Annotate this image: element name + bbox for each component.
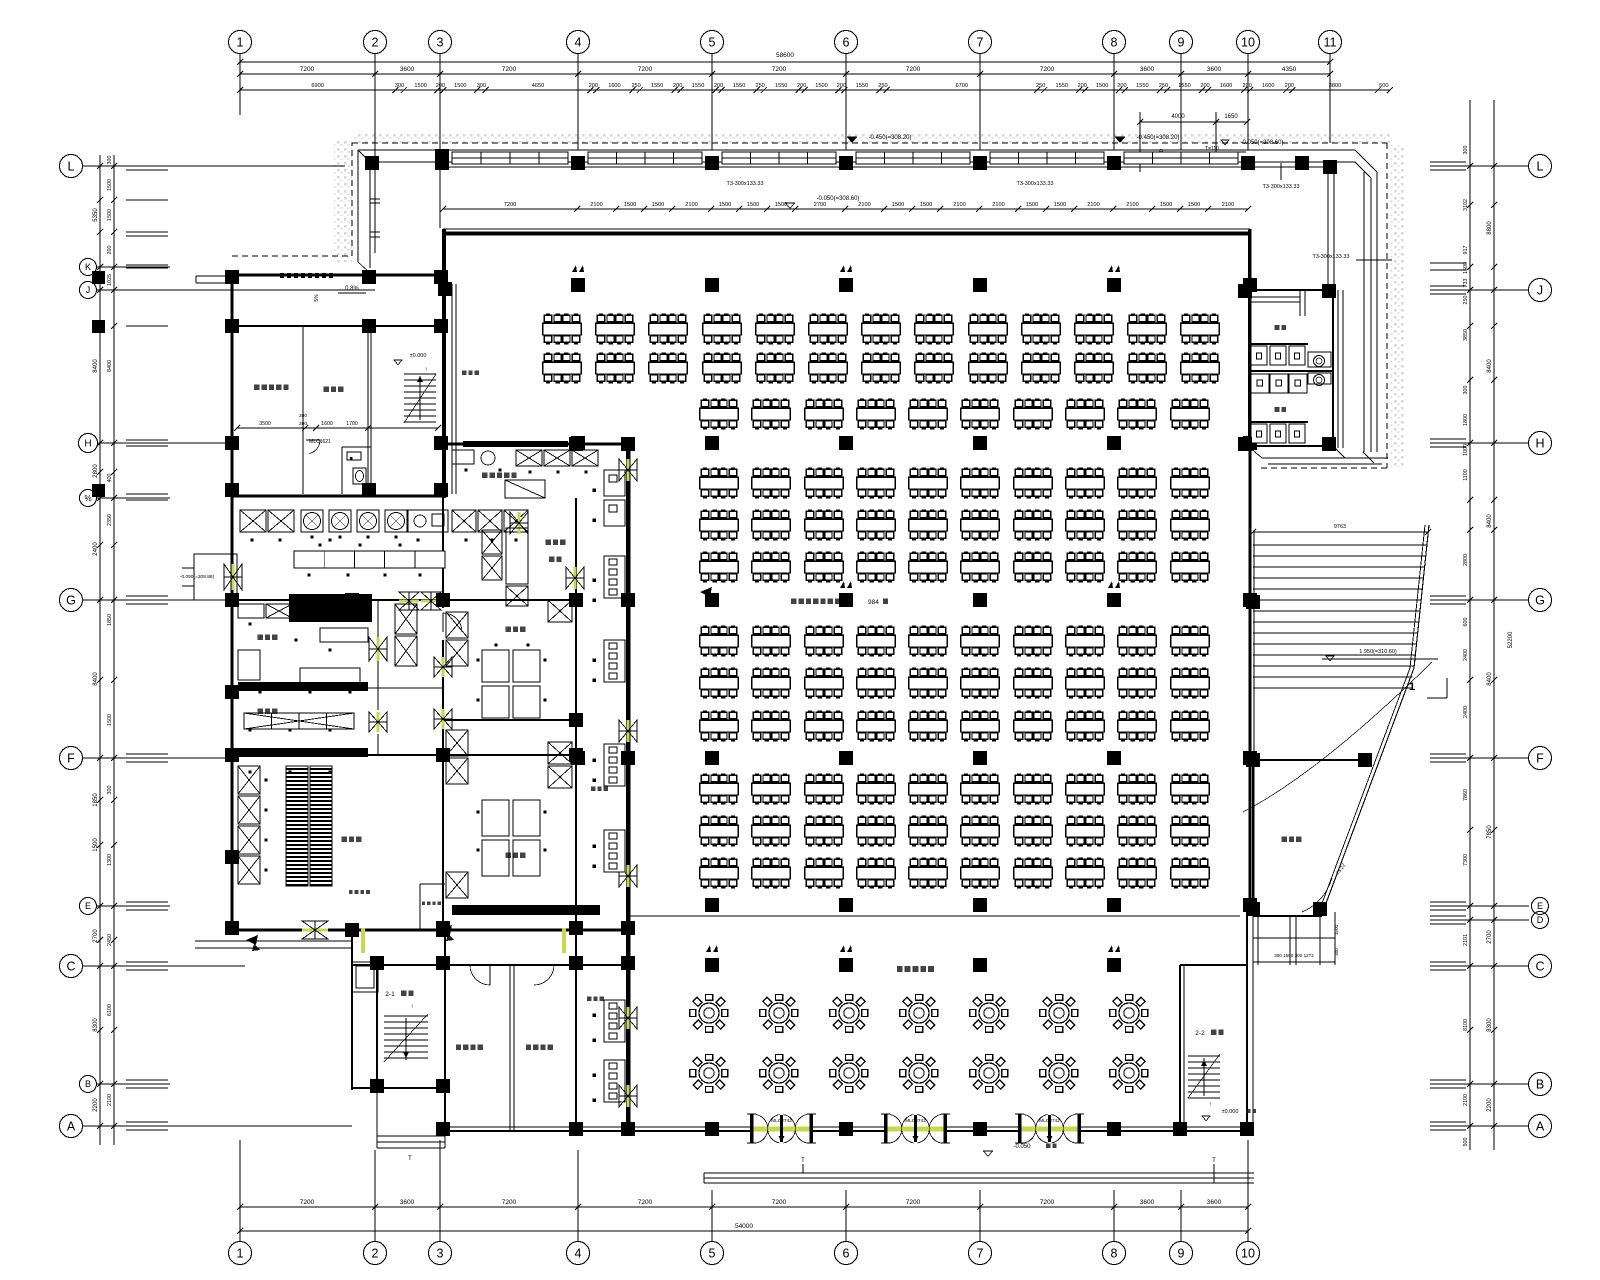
svg-text:4350: 4350 [1282, 66, 1297, 73]
svg-text:4650: 4650 [532, 83, 544, 89]
svg-text:7200: 7200 [300, 1199, 315, 1206]
svg-text:T=110: T=110 [1205, 146, 1219, 152]
svg-text:T: T [801, 1158, 805, 1164]
svg-text:300: 300 [1463, 146, 1469, 155]
svg-text:1500: 1500 [1026, 202, 1038, 208]
svg-text:T3-300x133.33: T3-300x133.33 [1313, 254, 1350, 260]
svg-text:1500: 1500 [1096, 83, 1108, 89]
svg-text:5%: 5% [314, 294, 320, 302]
svg-text:A: A [67, 1120, 76, 1134]
svg-text:4: 4 [575, 36, 582, 50]
svg-text:8300: 8300 [93, 1018, 99, 1032]
svg-text:6: 6 [843, 36, 850, 50]
svg-text:8400: 8400 [93, 672, 99, 686]
svg-text:9: 9 [1178, 36, 1185, 50]
svg-text:52200: 52200 [1508, 631, 1514, 648]
svg-text:6900: 6900 [311, 83, 323, 89]
svg-text:200: 200 [299, 413, 307, 419]
svg-text:MLC1621: MLC1621 [309, 439, 331, 445]
svg-text:1500: 1500 [1188, 202, 1200, 208]
svg-text:T: T [408, 1156, 412, 1162]
svg-text:200: 200 [299, 421, 307, 427]
svg-text:2100: 2100 [685, 202, 697, 208]
svg-text:1500: 1500 [414, 83, 426, 89]
svg-text:2100: 2100 [1126, 202, 1138, 208]
svg-text:B: B [1536, 1078, 1544, 1092]
svg-text:1500: 1500 [93, 838, 99, 852]
svg-text:8400: 8400 [93, 359, 99, 373]
svg-text:1500: 1500 [719, 202, 731, 208]
svg-text:-0.450(=308.20): -0.450(=308.20) [1137, 135, 1180, 141]
svg-text:L: L [68, 160, 75, 174]
svg-text:300 1500 300 1272: 300 1500 300 1272 [1274, 953, 1314, 958]
svg-text:2-2: 2-2 [1195, 1030, 1205, 1037]
svg-text:250: 250 [1036, 83, 1045, 89]
svg-text:±0.000: ±0.000 [1222, 1109, 1239, 1115]
svg-text:3: 3 [437, 1247, 444, 1261]
svg-text:1100: 1100 [1463, 469, 1469, 481]
svg-text:1500: 1500 [1463, 262, 1469, 274]
svg-text:400: 400 [107, 474, 113, 483]
svg-text:3600: 3600 [400, 66, 415, 73]
svg-text:7200: 7200 [502, 1199, 517, 1206]
svg-text:1500: 1500 [775, 202, 787, 208]
svg-text:54000: 54000 [735, 1223, 753, 1230]
svg-text:7200: 7200 [772, 1199, 787, 1206]
svg-text:300: 300 [107, 786, 113, 795]
svg-text:3102: 3102 [1463, 199, 1469, 211]
svg-text:F: F [67, 752, 75, 766]
svg-text:250: 250 [755, 83, 764, 89]
svg-text:2700: 2700 [814, 202, 826, 208]
svg-text:-0.050(=308.60): -0.050(=308.60) [1241, 140, 1284, 146]
svg-text:2: 2 [372, 1247, 379, 1261]
svg-text:300: 300 [477, 83, 486, 89]
svg-text:7200: 7200 [1040, 66, 1055, 73]
svg-text:-0.050(=308.88): -0.050(=308.88) [180, 574, 215, 580]
svg-text:T3-300x133.33: T3-300x133.33 [1017, 181, 1054, 187]
svg-text:2200: 2200 [1487, 1098, 1493, 1112]
svg-text:1600: 1600 [321, 421, 333, 427]
svg-text:C: C [66, 960, 75, 974]
svg-text:6700: 6700 [956, 83, 968, 89]
svg-text:7300: 7300 [1463, 854, 1469, 866]
svg-text:7200: 7200 [638, 66, 653, 73]
svg-text:2100: 2100 [1222, 202, 1234, 208]
svg-text:11: 11 [1324, 36, 1337, 50]
svg-text:1600: 1600 [1220, 83, 1232, 89]
svg-text:200: 200 [837, 83, 846, 89]
svg-text:E: E [85, 901, 91, 911]
svg-text:H: H [1535, 437, 1544, 451]
svg-text:200: 200 [107, 246, 113, 255]
svg-text:1550: 1550 [856, 83, 868, 89]
svg-text:200: 200 [1242, 83, 1251, 89]
svg-text:1: 1 [237, 1247, 244, 1261]
svg-text:1: 1 [237, 36, 244, 50]
svg-text:5: 5 [709, 36, 716, 50]
svg-text:2100: 2100 [107, 1094, 113, 1106]
svg-text:10: 10 [1241, 1247, 1255, 1261]
svg-text:1300: 1300 [107, 854, 113, 866]
svg-text:300: 300 [1463, 386, 1469, 395]
svg-text:A: A [1536, 1120, 1545, 1134]
svg-text:600: 600 [1463, 618, 1469, 627]
svg-text:2100: 2100 [590, 202, 602, 208]
svg-text:200: 200 [1200, 83, 1209, 89]
svg-text:0.8%: 0.8% [345, 286, 359, 292]
svg-text:↑: ↑ [1209, 1102, 1212, 1108]
svg-text:8400: 8400 [1487, 514, 1493, 528]
svg-text:G: G [66, 594, 76, 608]
svg-text:2200: 2200 [93, 1098, 99, 1112]
svg-text:F: F [1536, 752, 1544, 766]
svg-text:10: 10 [1241, 36, 1255, 50]
svg-text:E: E [1537, 901, 1543, 911]
svg-text:1550: 1550 [651, 83, 663, 89]
svg-text:8800: 8800 [1487, 221, 1493, 235]
svg-text:200: 200 [436, 83, 445, 89]
svg-text:200: 200 [1117, 83, 1126, 89]
svg-text:B: B [85, 1079, 91, 1089]
svg-text:G: G [1535, 594, 1545, 608]
svg-text:1550: 1550 [1136, 83, 1148, 89]
svg-text:1500: 1500 [107, 714, 113, 726]
svg-text:±0.000: ±0.000 [410, 353, 427, 359]
svg-text:1550: 1550 [1178, 83, 1190, 89]
svg-text:250: 250 [1159, 83, 1168, 89]
svg-text:8: 8 [1111, 1247, 1118, 1261]
svg-text:4: 4 [575, 1247, 582, 1261]
svg-text:58600: 58600 [776, 52, 794, 59]
svg-text:2100: 2100 [858, 202, 870, 208]
svg-text:1500: 1500 [747, 202, 759, 208]
svg-text:200: 200 [1078, 83, 1087, 89]
svg-text:1600: 1600 [1262, 83, 1274, 89]
svg-text:250: 250 [878, 83, 887, 89]
svg-text:1550: 1550 [692, 83, 704, 89]
svg-text:7: 7 [977, 36, 984, 50]
svg-text:500: 500 [1379, 83, 1388, 89]
svg-text:200: 200 [1285, 83, 1294, 89]
svg-text:300: 300 [107, 156, 113, 165]
svg-text:200: 200 [673, 83, 682, 89]
svg-text:2400: 2400 [1463, 649, 1469, 661]
svg-text:6100: 6100 [107, 1004, 113, 1016]
svg-text:7860: 7860 [1463, 789, 1469, 801]
svg-text:1025: 1025 [107, 274, 113, 286]
svg-text:3800: 3800 [1329, 83, 1341, 89]
svg-text:3: 3 [437, 36, 444, 50]
svg-text:984: 984 [868, 599, 879, 606]
svg-text:↑: ↑ [425, 367, 428, 373]
svg-text:2-1: 2-1 [385, 991, 395, 998]
svg-text:5350: 5350 [93, 208, 99, 222]
svg-text:500: 500 [1463, 1138, 1469, 1147]
svg-text:2350: 2350 [107, 514, 113, 526]
svg-text:7: 7 [977, 1247, 984, 1261]
svg-text:J: J [86, 285, 91, 295]
svg-text:1850: 1850 [107, 614, 113, 626]
svg-text:7200: 7200 [504, 202, 516, 208]
svg-text:7200: 7200 [638, 1199, 653, 1206]
svg-text:7200: 7200 [906, 66, 921, 73]
svg-text:T3-300x133.33: T3-300x133.33 [727, 181, 764, 187]
svg-text:1550: 1550 [1056, 83, 1068, 89]
svg-text:7850: 7850 [1487, 825, 1493, 839]
svg-text:8400: 8400 [107, 360, 113, 372]
svg-text:2700: 2700 [1487, 930, 1493, 944]
svg-text:8400: 8400 [1487, 672, 1493, 686]
svg-text:L: L [1537, 160, 1544, 174]
svg-text:1550: 1550 [733, 83, 745, 89]
svg-text:8400: 8400 [1487, 359, 1493, 373]
svg-text:2800: 2800 [93, 464, 99, 478]
svg-text:J: J [1537, 284, 1543, 298]
svg-text:2100: 2100 [1463, 1094, 1469, 1106]
svg-text:3600: 3600 [1140, 1199, 1155, 1206]
svg-text:3600: 3600 [400, 1199, 415, 1206]
svg-text:200: 200 [714, 83, 723, 89]
svg-text:2100: 2100 [1087, 202, 1099, 208]
svg-text:1500: 1500 [624, 202, 636, 208]
svg-text:1500: 1500 [892, 202, 904, 208]
svg-text:T3-300x133.33: T3-300x133.33 [1263, 184, 1300, 190]
svg-text:3500: 3500 [259, 421, 271, 427]
svg-text:917: 917 [1463, 246, 1469, 255]
svg-text:D: D [1537, 915, 1544, 925]
svg-text:1.950(=310.60): 1.950(=310.60) [1359, 649, 1397, 655]
svg-text:4000: 4000 [1171, 114, 1185, 120]
svg-text:8300: 8300 [1487, 1018, 1493, 1032]
svg-text:H: H [84, 439, 91, 450]
svg-text:1800: 1800 [1463, 414, 1469, 426]
svg-text:200: 200 [589, 83, 598, 89]
svg-text:2700: 2700 [93, 929, 99, 943]
svg-text:2101: 2101 [1463, 934, 1469, 946]
svg-text:7200: 7200 [906, 1199, 921, 1206]
svg-text:1500: 1500 [454, 83, 466, 89]
svg-text:3600: 3600 [1207, 66, 1222, 73]
svg-text:1550: 1550 [775, 83, 787, 89]
svg-text:7200: 7200 [502, 66, 517, 73]
svg-text:7200: 7200 [1040, 1199, 1055, 1206]
svg-text:-0.450(=308.20): -0.450(=308.20) [869, 135, 912, 141]
svg-text:1000: 1000 [1463, 444, 1469, 456]
svg-text:MLC2742: MLC2742 [771, 1118, 792, 1124]
svg-text:1500: 1500 [920, 202, 932, 208]
svg-text:200: 200 [797, 83, 806, 89]
svg-text:MLC2742: MLC2742 [1039, 1118, 1060, 1124]
svg-text:1700: 1700 [346, 421, 358, 427]
svg-text:7200: 7200 [300, 66, 315, 73]
svg-text:↑: ↑ [411, 1004, 414, 1010]
svg-text:K: K [85, 262, 91, 272]
svg-text:1500: 1500 [652, 202, 664, 208]
svg-text:1650: 1650 [1224, 114, 1238, 120]
svg-text:2: 2 [372, 36, 379, 50]
svg-text:MLC2742: MLC2742 [905, 1118, 926, 1124]
svg-text:8100: 8100 [1463, 1019, 1469, 1031]
svg-text:2400: 2400 [1463, 706, 1469, 718]
svg-text:2450: 2450 [107, 934, 113, 946]
svg-text:5: 5 [709, 1247, 716, 1261]
svg-text:1500: 1500 [107, 179, 113, 191]
svg-text:7200: 7200 [772, 66, 787, 73]
svg-text:1500: 1500 [815, 83, 827, 89]
svg-text:300: 300 [395, 83, 404, 89]
svg-text:2100: 2100 [992, 202, 1004, 208]
svg-text:-0.050: -0.050 [1013, 1144, 1031, 1150]
svg-text:3850: 3850 [1463, 329, 1469, 341]
svg-text:2800: 2800 [1463, 554, 1469, 566]
svg-text:8: 8 [1111, 36, 1118, 50]
svg-text:1600: 1600 [608, 83, 620, 89]
svg-text:1500: 1500 [1160, 202, 1172, 208]
svg-text:3600: 3600 [1207, 1199, 1222, 1206]
svg-text:1500: 1500 [1054, 202, 1066, 208]
svg-text:9: 9 [1178, 1247, 1185, 1261]
svg-text:9763: 9763 [1334, 524, 1346, 530]
svg-text:2400: 2400 [93, 542, 99, 556]
svg-text:1850: 1850 [93, 793, 99, 807]
svg-text:3600: 3600 [1140, 66, 1155, 73]
svg-text:C: C [1535, 960, 1544, 974]
svg-text:6: 6 [843, 1247, 850, 1261]
svg-text:T: T [1212, 1158, 1216, 1164]
svg-text:%: % [84, 494, 91, 503]
svg-text:2100: 2100 [953, 202, 965, 208]
svg-text:250: 250 [1463, 296, 1469, 305]
svg-text:1500: 1500 [107, 209, 113, 221]
svg-text:250: 250 [631, 83, 640, 89]
svg-text:1: 1 [1409, 681, 1415, 693]
